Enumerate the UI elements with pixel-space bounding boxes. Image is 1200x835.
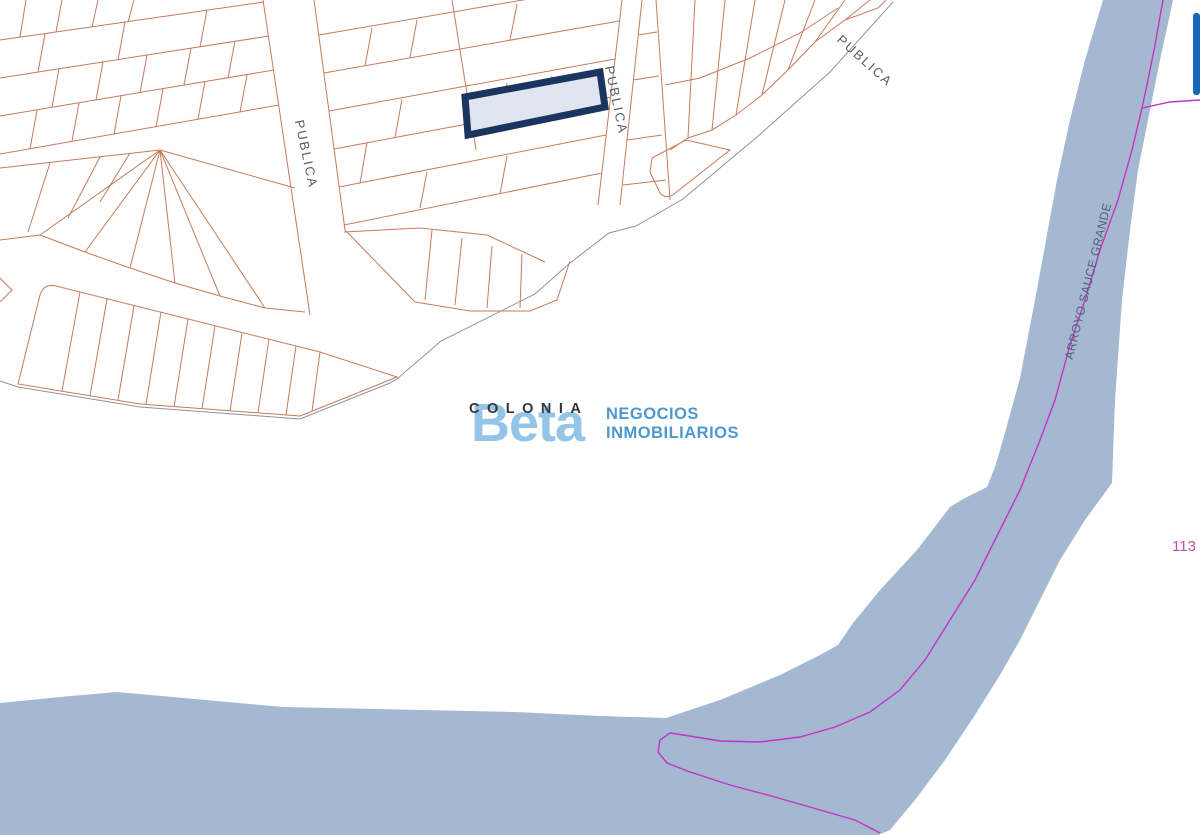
parcel-ref-number: 113 (1172, 538, 1196, 555)
street-label-publica-3: PUBLICA (834, 32, 896, 90)
parcel-grid (0, 0, 886, 416)
parcel-block-left-fan (0, 150, 305, 312)
street-label-publica-1: PUBLICA (292, 118, 321, 189)
cadastral-map: Beta NEGOCIOS INMOBILIARIOS COLONIA PUBL… (0, 0, 1200, 835)
watermark-tagline-line2: INMOBILIARIOS (606, 424, 739, 442)
map-canvas: Beta NEGOCIOS INMOBILIARIOS COLONIA PUBL… (0, 0, 1200, 835)
street-2-edges (598, 0, 670, 205)
region-label-colonia: COLONIA (469, 401, 588, 417)
parcel-block-topleft (0, 0, 279, 154)
river (0, 0, 1173, 835)
map-edge-marker (1193, 13, 1200, 95)
parcel-block-fan-right (650, 0, 886, 197)
watermark-tagline-line1: NEGOCIOS (606, 405, 699, 423)
parcel-block-strip (0, 278, 397, 416)
highlighted-parcel[interactable] (465, 72, 605, 135)
boundary-line (0, 2, 893, 419)
parcel-block-middle (319, 0, 619, 311)
